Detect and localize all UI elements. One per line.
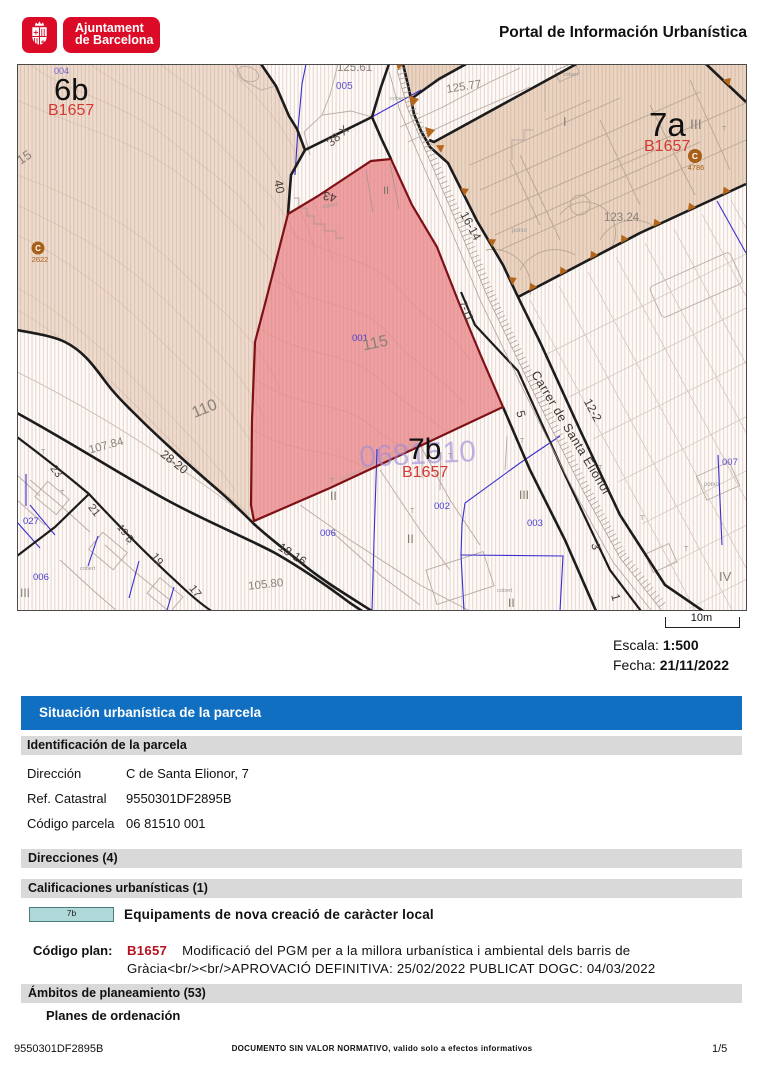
svg-text:cobert: cobert — [497, 588, 513, 594]
svg-text:II: II — [330, 489, 337, 503]
svg-text:006: 006 — [320, 528, 336, 539]
svg-text:005: 005 — [336, 81, 353, 92]
svg-text:003: 003 — [527, 518, 543, 529]
svg-text:II: II — [508, 596, 515, 610]
svg-text:7b: 7b — [408, 433, 441, 466]
svg-text:T: T — [598, 465, 603, 472]
svg-text:007: 007 — [722, 457, 738, 468]
svg-text:T: T — [448, 453, 453, 460]
svg-text:125.61: 125.61 — [337, 64, 372, 74]
svg-text:006: 006 — [33, 572, 49, 583]
svg-text:III: III — [20, 586, 30, 600]
svg-text:porxo: porxo — [512, 228, 528, 234]
svg-text:4786: 4786 — [688, 163, 705, 172]
svg-text:2622: 2622 — [32, 255, 49, 264]
svg-text:T: T — [722, 126, 727, 133]
svg-text:40: 40 — [271, 179, 287, 195]
svg-text:123.24: 123.24 — [604, 212, 640, 224]
svg-text:002: 002 — [434, 501, 450, 512]
svg-text:B1657: B1657 — [402, 464, 448, 481]
svg-text:III: III — [519, 488, 529, 502]
svg-text:porxo: porxo — [704, 482, 720, 488]
svg-text:III: III — [690, 116, 702, 132]
svg-text:I: I — [563, 114, 567, 129]
svg-text:T: T — [640, 515, 645, 522]
svg-text:T: T — [41, 449, 46, 456]
svg-text:T: T — [125, 540, 130, 547]
svg-text:IV: IV — [719, 569, 732, 584]
svg-text:II: II — [383, 185, 389, 197]
svg-text:cobert: cobert — [390, 96, 406, 102]
svg-text:T: T — [60, 490, 65, 497]
svg-text:II: II — [407, 532, 414, 546]
svg-text:cobert: cobert — [80, 566, 96, 572]
svg-text:T: T — [684, 546, 689, 553]
svg-text:C: C — [692, 151, 698, 161]
svg-text:B1657: B1657 — [48, 102, 94, 119]
svg-text:027: 027 — [23, 516, 39, 527]
svg-text:T: T — [410, 508, 415, 515]
svg-text:T: T — [330, 478, 335, 485]
svg-text:T: T — [520, 438, 525, 445]
svg-text:B1657: B1657 — [644, 138, 690, 155]
svg-text:C: C — [35, 244, 41, 253]
svg-text:cobert: cobert — [563, 72, 579, 78]
